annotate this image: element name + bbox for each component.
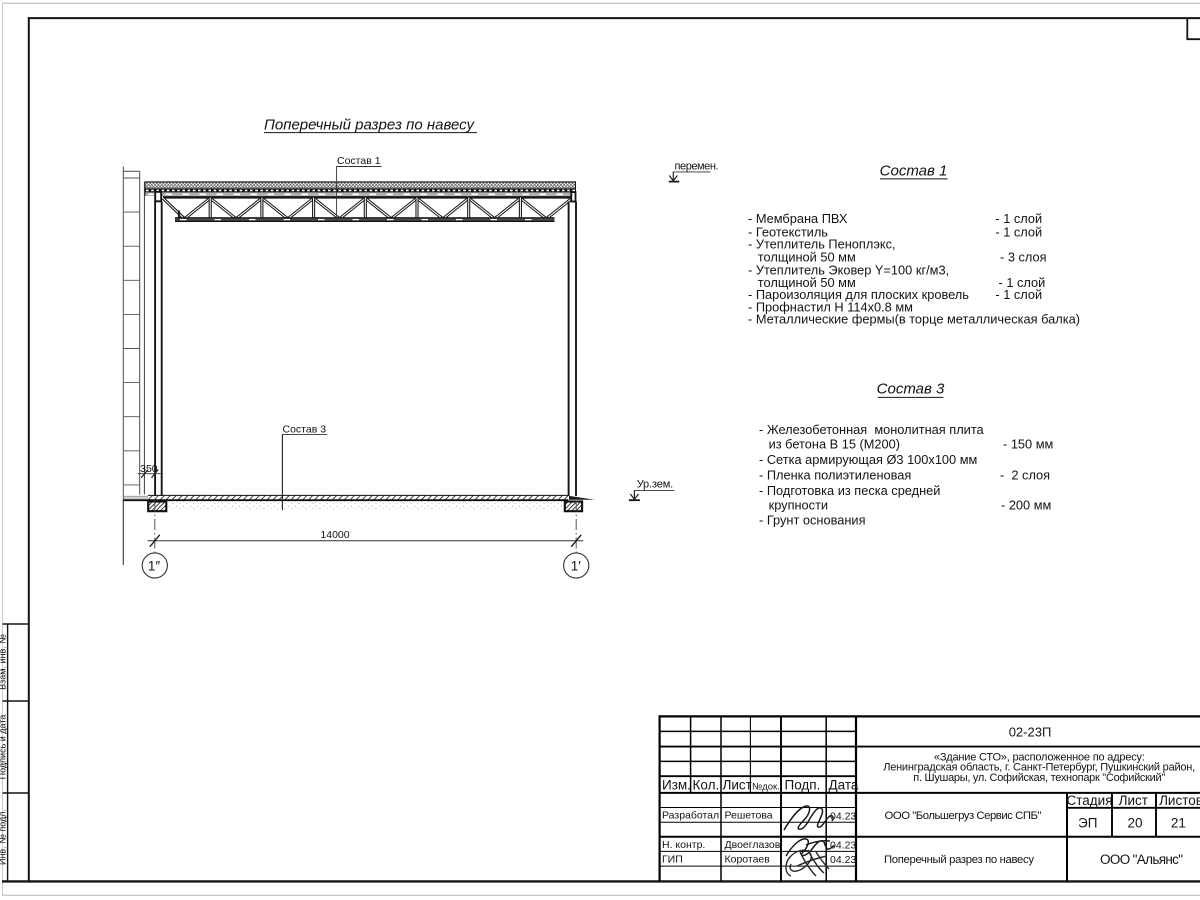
svg-text:Листов: Листов <box>1159 793 1200 808</box>
svg-text:крупности: крупности <box>769 498 829 513</box>
svg-text:Поперечный разрез по навесу: Поперечный разрез по навесу <box>264 117 476 134</box>
svg-text:14000: 14000 <box>320 529 349 541</box>
svg-text:- 200 мм: - 200 мм <box>1001 498 1051 513</box>
svg-text:04.23: 04.23 <box>830 810 856 822</box>
svg-text:Инв. № подл.: Инв. № подл. <box>0 809 7 865</box>
svg-text:Коротаев: Коротаев <box>725 853 771 865</box>
svg-text:- 150 мм: - 150 мм <box>1003 437 1053 452</box>
svg-text:ООО "Большегруз Сервис СПБ": ООО "Большегруз Сервис СПБ" <box>885 810 1042 822</box>
svg-text:ООО "Альянс": ООО "Альянс" <box>1100 852 1183 867</box>
svg-text:Взам. инв. №: Взам. инв. № <box>0 634 7 690</box>
svg-text:- 1 слой: - 1 слой <box>995 224 1042 239</box>
svg-text:Н. контр.: Н. контр. <box>662 839 705 851</box>
svg-text:Кол.: Кол. <box>693 778 720 793</box>
svg-text:1′: 1′ <box>571 558 582 573</box>
svg-text:- Пленка полиэтиленовая: - Пленка полиэтиленовая <box>759 468 911 483</box>
svg-text:- Подготовка из песка средней: - Подготовка из песка средней <box>759 483 940 498</box>
svg-text:перемен.: перемен. <box>675 161 719 173</box>
svg-text:- Грунт основания: - Грунт основания <box>759 513 866 528</box>
svg-text:Разработал: Разработал <box>662 810 719 822</box>
svg-text:20: 20 <box>1127 815 1142 830</box>
svg-text:ЭП: ЭП <box>1078 815 1097 830</box>
svg-text:- Сетка армирующая Ø3 100х100: - Сетка армирующая Ø3 100х100 мм <box>759 452 977 467</box>
svg-text:Состав 3: Состав 3 <box>283 423 327 435</box>
svg-text:ГИП: ГИП <box>662 853 683 865</box>
svg-text:п. Шушары, ул. Софийская, техн: п. Шушары, ул. Софийская, технопарк "Соф… <box>913 772 1165 784</box>
svg-text:№док.: №док. <box>752 781 780 792</box>
svg-text:- 3 слоя: - 3 слоя <box>1000 249 1047 264</box>
svg-text:Состав 1: Состав 1 <box>880 162 948 179</box>
svg-text:Лист: Лист <box>723 778 752 793</box>
svg-text:- 1 слой: - 1 слой <box>995 287 1042 302</box>
svg-text:Дата: Дата <box>829 778 859 793</box>
svg-text:1″: 1″ <box>148 558 161 573</box>
svg-text:Двоеглазов: Двоеглазов <box>725 839 781 851</box>
svg-text:- Металлические фермы(в торце: - Металлические фермы(в торце металличес… <box>748 312 1080 327</box>
svg-text:- Железобетонная монолитная п: - Железобетонная монолитная плита <box>759 422 985 437</box>
svg-text:350: 350 <box>140 463 158 475</box>
svg-text:Поперечный разрез по навесу: Поперечный разрез по навесу <box>884 854 1034 866</box>
svg-text:Состав 3: Состав 3 <box>877 381 945 398</box>
svg-text:Решетова: Решетова <box>725 810 773 822</box>
svg-text:- 2 слоя: - 2 слоя <box>1000 468 1050 483</box>
svg-text:Стадия: Стадия <box>1066 793 1112 808</box>
svg-text:из бетона В 15 (М200): из бетона В 15 (М200) <box>769 437 900 452</box>
svg-text:Лист: Лист <box>1119 793 1148 808</box>
svg-text:Ур.зем.: Ур.зем. <box>637 478 674 490</box>
svg-text:Подп.: Подп. <box>785 778 821 793</box>
svg-text:02-23П: 02-23П <box>1009 724 1052 739</box>
svg-text:04.23: 04.23 <box>830 854 856 866</box>
svg-text:21: 21 <box>1171 815 1186 830</box>
svg-text:Подпись и дата: Подпись и дата <box>0 715 7 780</box>
svg-text:Состав 1: Состав 1 <box>337 155 381 167</box>
svg-text:Изм.: Изм. <box>662 778 691 793</box>
